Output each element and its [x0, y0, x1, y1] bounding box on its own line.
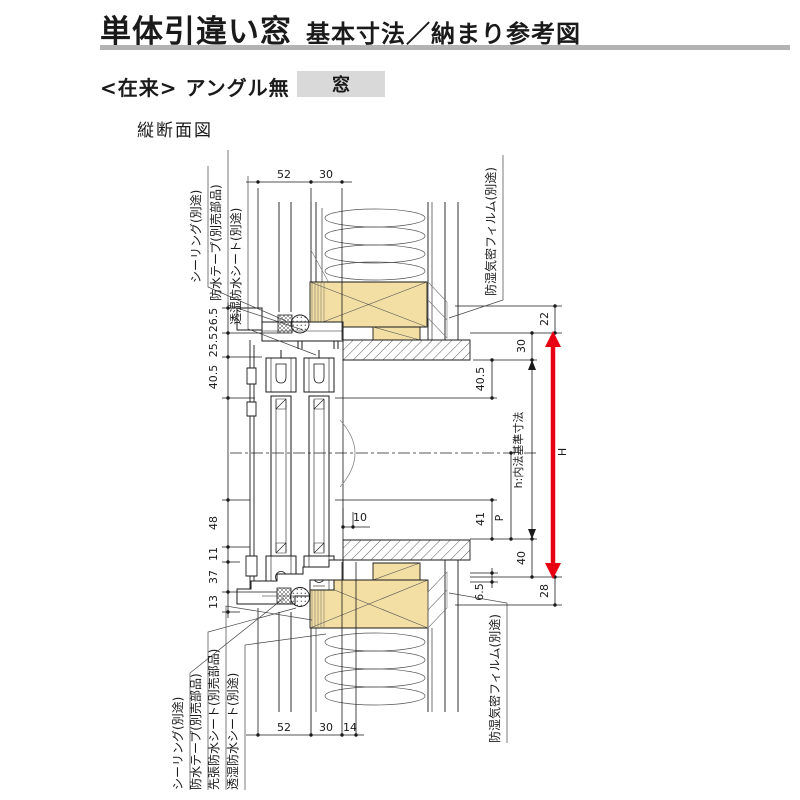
sealing-top: [278, 315, 309, 333]
label-vapor-film-bottom: 防湿気密フィルム(別途): [487, 614, 502, 743]
dim-H: H: [556, 448, 569, 456]
dim-right-41: 41: [474, 512, 487, 526]
vertical-section-drawing: 52 30 52 30 14: [0, 0, 800, 800]
label-waterproof-tape-bottom: 防水テープ(別売部品): [188, 673, 203, 790]
vapor-film-top: [428, 282, 447, 338]
dim-left-26.5: 26.5: [207, 308, 220, 333]
dim-mid-10: 10: [353, 511, 367, 524]
sash-interior: [304, 350, 334, 590]
insulation-top: [325, 209, 425, 280]
dim-right-40.5: 40.5: [474, 367, 487, 392]
dim-left-48: 48: [207, 516, 220, 530]
dim-bottom-52: 52: [277, 721, 291, 734]
interior-casing-head: [343, 340, 470, 360]
interior-casing-sill: [343, 540, 470, 560]
dim-right-40: 40: [515, 551, 528, 565]
wood-lintel: [310, 282, 427, 327]
frame-exterior-rail: [246, 340, 257, 604]
label-sealing-bottom: シーリング(別途): [170, 697, 185, 790]
vapor-film-bottom: [428, 572, 447, 628]
insulation-bottom: [325, 633, 425, 705]
dim-h-note: h:内法基準寸法: [511, 412, 525, 489]
label-pre-waterproof-sheet-bottom: 先張防水シート(別売部品): [206, 649, 221, 790]
wood-block-bottom: [373, 563, 420, 580]
label-vapor-film-top: 防湿気密フィルム(別途): [483, 167, 498, 296]
dim-left-11: 11: [207, 547, 220, 561]
dim-bottom-14: 14: [343, 721, 357, 734]
dim-left-13: 13: [207, 595, 220, 609]
sealing-bottom: [277, 588, 310, 607]
label-breathable-sheet-bottom: 透湿防水シート(別途): [225, 673, 240, 790]
wood-block-top: [373, 327, 420, 340]
label-sealing-top: シーリング(別途): [188, 190, 203, 283]
dim-right-22: 22: [538, 312, 551, 326]
sash-exterior: [266, 350, 296, 590]
dim-right-p: P: [493, 514, 506, 521]
dim-left-40.5: 40.5: [207, 365, 220, 390]
dim-top-30: 30: [319, 168, 333, 181]
label-breathable-sheet-top: 透湿防水シート(別途): [228, 208, 243, 325]
dim-bottom-30: 30: [319, 721, 333, 734]
dim-right-28: 28: [538, 584, 551, 598]
label-waterproof-tape-top: 防水テープ(別売部品): [208, 184, 223, 301]
dim-chain-right: [455, 304, 562, 606]
dim-left-25.5: 25.5: [207, 333, 220, 358]
catalog-page: 単体引違い窓 基本寸法／納まり参考図 <在来> アングル無 窓 縦断面図: [0, 0, 800, 800]
dim-left-37: 37: [207, 570, 220, 584]
dim-top-52: 52: [277, 168, 291, 181]
dim-right-30: 30: [515, 339, 528, 353]
swing-arc: [340, 420, 355, 487]
